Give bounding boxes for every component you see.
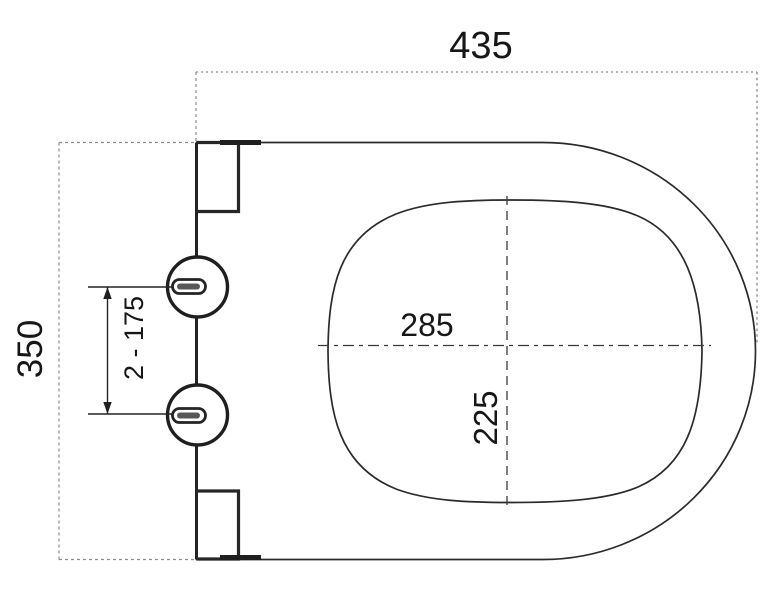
- hinge-slot-top-bar: [177, 284, 200, 290]
- arrow-up-icon: [103, 287, 111, 299]
- hinge-slot-bottom-bar: [177, 413, 200, 419]
- label-overall-height: 350: [11, 320, 50, 378]
- label-inner-depth: 225: [467, 390, 504, 445]
- label-inner-width: 285: [400, 307, 453, 343]
- seat-inner-opening: [328, 200, 702, 503]
- label-overall-width: 435: [449, 25, 512, 67]
- seat-dimension-drawing: 435 350 2 - 175 285 225: [0, 0, 780, 600]
- label-hinge-spacing: 2 - 175: [119, 296, 149, 380]
- arrow-down-icon: [103, 402, 111, 414]
- drawing-canvas: 435 350 2 - 175 285 225: [0, 0, 780, 600]
